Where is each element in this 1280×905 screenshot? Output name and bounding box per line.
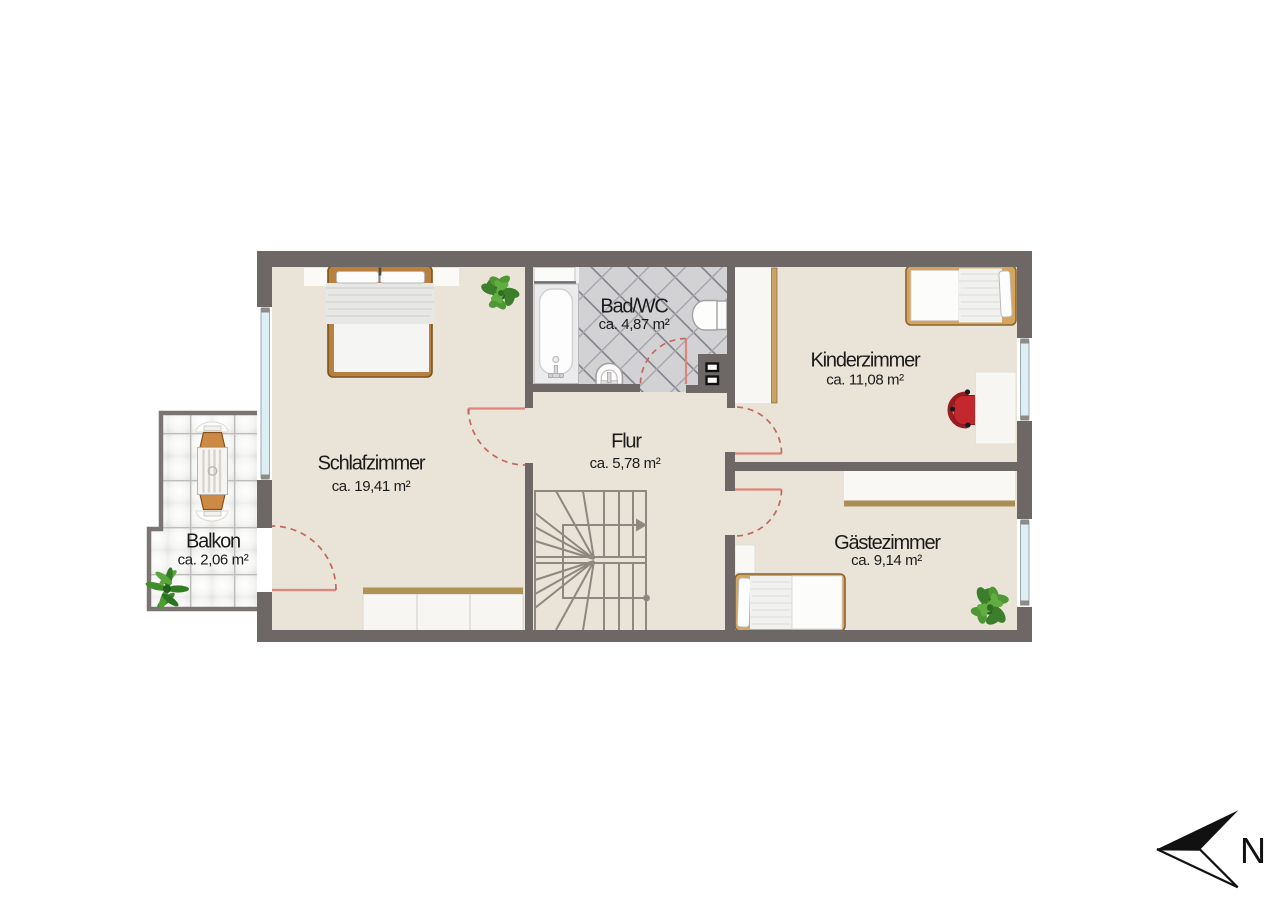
svg-text:Kinderzimmer: Kinderzimmer <box>811 350 921 372</box>
svg-text:ca. 11,08 m²: ca. 11,08 m² <box>826 372 904 389</box>
svg-text:ca. 2,06 m²: ca. 2,06 m² <box>178 552 249 569</box>
svg-text:Bad/WC: Bad/WC <box>600 296 668 318</box>
svg-text:N: N <box>1240 830 1266 871</box>
svg-text:ca. 4,87 m²: ca. 4,87 m² <box>599 316 670 333</box>
svg-text:Flur: Flur <box>611 431 642 453</box>
svg-text:ca. 19,41 m²: ca. 19,41 m² <box>332 478 411 495</box>
svg-text:ca. 5,78 m²: ca. 5,78 m² <box>590 455 661 472</box>
svg-text:Schlafzimmer: Schlafzimmer <box>318 453 426 475</box>
svg-text:ca. 9,14 m²: ca. 9,14 m² <box>851 552 922 569</box>
svg-text:Balkon: Balkon <box>186 531 240 553</box>
svg-text:Gästezimmer: Gästezimmer <box>834 532 941 554</box>
